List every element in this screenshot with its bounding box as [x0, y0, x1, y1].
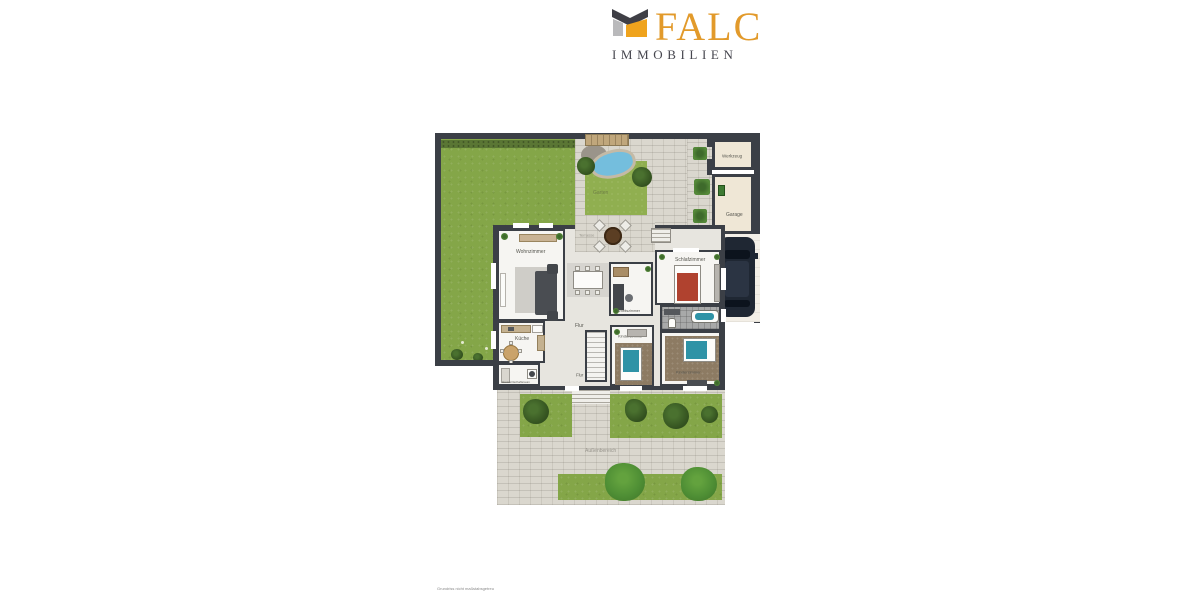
- kitchen-sink: [508, 327, 514, 331]
- entry-steps-side: [651, 228, 671, 243]
- washing-machine-door: [529, 371, 535, 377]
- garden-top: [497, 139, 577, 230]
- car-windshield: [724, 250, 750, 259]
- front-bush-3: [701, 406, 718, 423]
- wardrobe-kz1: [627, 329, 647, 337]
- terrace: Terrasse: [575, 218, 655, 252]
- room-kinderzimmer-mitte: Kinderzimmer: [610, 325, 654, 386]
- garden-left: [441, 139, 497, 360]
- entry-steps-front: [572, 390, 610, 404]
- bottom-bush-2: [681, 467, 717, 501]
- patio-tree-2: [632, 167, 652, 187]
- floorplan: Garten Werkzeug Garage: [435, 133, 765, 505]
- room-schlafzimmer: Schlafzimmer: [655, 250, 721, 305]
- disclaimer: Grundriss nicht maßstabsgetreu: [437, 586, 494, 591]
- window-kz2-bottom: [683, 386, 707, 391]
- patio-table: [604, 227, 622, 245]
- patio-chair-4: [619, 240, 632, 253]
- window-wz-left: [491, 263, 496, 289]
- patio-chair-2: [619, 219, 632, 232]
- desk: [613, 284, 624, 310]
- planter-3: [693, 209, 707, 223]
- window-bad-right: [721, 309, 726, 322]
- plant-az-2: [645, 266, 651, 272]
- werkzeug-label: Werkzeug: [722, 155, 742, 160]
- kinderzimmer-rechts-label: Kinderzimmer: [676, 371, 701, 375]
- sofa: [535, 271, 557, 315]
- window-wz-2: [539, 223, 553, 228]
- toilet: [668, 318, 676, 328]
- room-kueche: Küche: [497, 321, 545, 363]
- dining-table: [573, 271, 603, 289]
- window-wz-1: [513, 223, 529, 228]
- kitchen-counter-top: [501, 325, 531, 333]
- aussenbereich-label: Außenbereich: [585, 449, 616, 454]
- flur-unten-label: Flur: [576, 374, 583, 378]
- planter-2: [694, 179, 710, 195]
- room-wohnzimmer: Wohnzimmer: [497, 229, 565, 321]
- washing-machine: [527, 369, 537, 379]
- wohnzimmer-label: Wohnzimmer: [516, 250, 545, 255]
- plant-kz1: [614, 329, 620, 335]
- car-mirror-right: [754, 253, 758, 259]
- desk-chair: [625, 294, 633, 302]
- window-sz-top: [673, 248, 699, 252]
- arbeitszimmer-label: Arbeitszimmer: [617, 310, 640, 314]
- bed-double-blanket: [677, 273, 698, 301]
- dining-chair-2: [585, 266, 590, 271]
- garden-flower-2: [485, 347, 488, 350]
- garage-shelf: [718, 185, 725, 196]
- wall-left: [435, 133, 441, 366]
- room-kinderzimmer-rechts: Kinderzimmer: [660, 331, 721, 386]
- hwr-label: Hauswirtschaftsraum: [502, 381, 530, 384]
- kueche-label: Küche: [515, 337, 529, 342]
- armchair-1: [547, 264, 558, 274]
- vanity: [664, 309, 680, 315]
- garage-label: Garage: [726, 213, 743, 218]
- bed-kz1-blanket: [623, 350, 639, 372]
- wall-garden-bottom: [435, 360, 497, 366]
- bed-kz1: [620, 347, 642, 381]
- staircase: [585, 330, 607, 382]
- car-rear-window: [724, 300, 750, 307]
- kitchen-table: [503, 345, 519, 361]
- brand-subtitle: IMMOBILIEN: [612, 47, 737, 63]
- terrasse-label: Terrasse: [579, 234, 594, 238]
- kitchen-counter-side: [537, 335, 545, 351]
- dining-chair-4: [575, 290, 580, 295]
- dining-chair-3: [595, 266, 600, 271]
- tv-board: [500, 273, 506, 307]
- dining-chair-5: [585, 290, 590, 295]
- front-bush-1: [523, 399, 549, 424]
- dining-chair-6: [595, 290, 600, 295]
- bed-kz2-blanket: [686, 341, 707, 359]
- armchair-2: [547, 311, 558, 321]
- window-sz-right: [721, 268, 726, 290]
- entry-door: [565, 386, 579, 391]
- room-bad: [660, 305, 721, 331]
- schlafzimmer-label: Schlafzimmer: [675, 258, 705, 263]
- bathtub-water: [695, 313, 714, 320]
- wardrobe-sz: [714, 264, 720, 302]
- garden-label: Garten: [593, 191, 608, 196]
- plant-sz-2: [714, 254, 720, 260]
- patio-tree-1: [577, 157, 595, 175]
- garden-shrub-1: [451, 349, 463, 360]
- patio-chair-3: [593, 240, 606, 253]
- planter-1: [693, 147, 707, 160]
- room-werkzeug: Werkzeug: [712, 139, 754, 170]
- plant-wz-2: [556, 233, 563, 240]
- plant-sz-1: [659, 254, 665, 260]
- room-hwr: Hauswirtschaftsraum: [497, 363, 540, 386]
- dining-chair-1: [575, 266, 580, 271]
- sideboard: [519, 234, 557, 242]
- hedge: [441, 140, 575, 148]
- kitchen-chair-2: [518, 349, 522, 353]
- garden-flower-1: [461, 341, 464, 344]
- bathtub: [691, 310, 719, 323]
- front-bush-2: [663, 403, 689, 429]
- plant-wz-1: [501, 233, 508, 240]
- page: FALC IMMOBILIEN Garten: [0, 0, 1200, 600]
- garden-bench: [585, 134, 629, 146]
- falc-house-icon: [612, 8, 648, 40]
- window-kueche-left: [491, 331, 496, 349]
- bottom-bush-1: [605, 463, 645, 501]
- plant-kz2: [714, 380, 720, 386]
- bed-double: [674, 265, 701, 304]
- flur-oben-label: Flur: [575, 324, 584, 329]
- kitchen-chair-1: [500, 349, 504, 353]
- fridge: [532, 325, 543, 333]
- front-tree-1: [625, 399, 647, 422]
- patio-chair-1: [593, 219, 606, 232]
- room-arbeitszimmer: Arbeitszimmer: [609, 262, 653, 316]
- kitchen-chair-3: [509, 341, 513, 345]
- brand-wordmark: FALC: [655, 3, 762, 50]
- window-kz1-bottom: [620, 386, 642, 391]
- car-roof: [725, 261, 749, 297]
- office-shelf: [613, 267, 629, 277]
- bed-kz2: [683, 338, 716, 362]
